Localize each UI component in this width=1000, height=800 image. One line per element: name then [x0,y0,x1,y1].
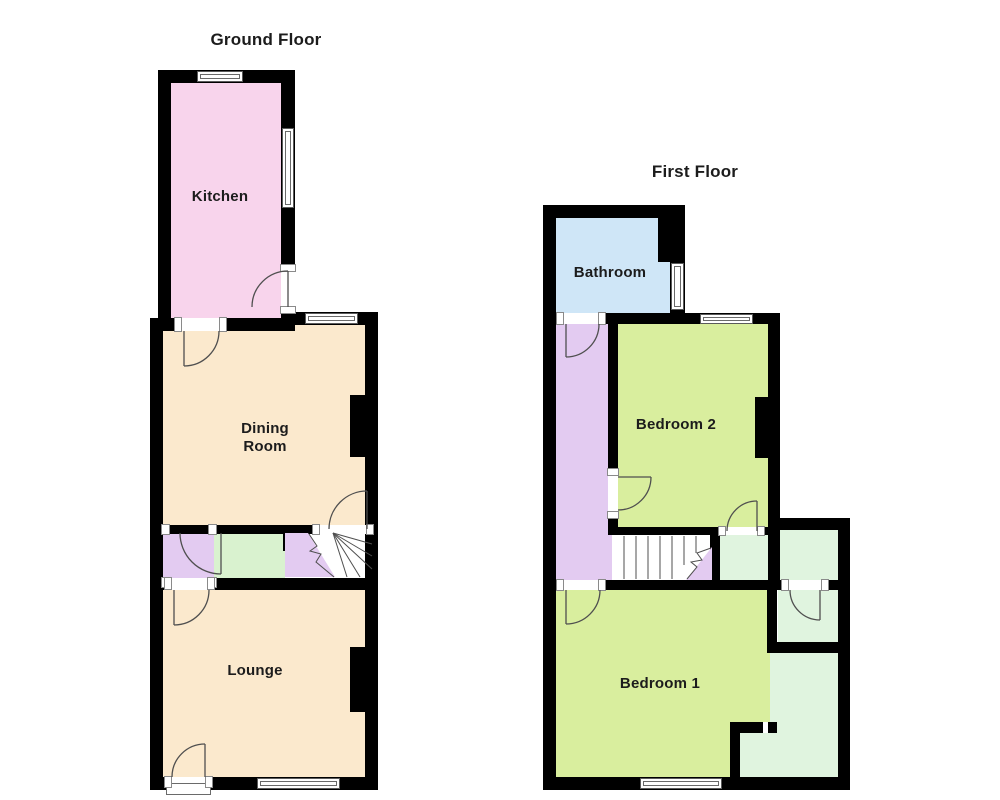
kitchen-side-window [282,128,294,208]
bedroom2-label: Bedroom 2 [616,416,736,434]
door-jamb [164,577,172,590]
door-jamb [219,317,227,332]
bedroom2-door-opening [608,475,618,513]
door-jamb [607,468,619,476]
door-jamb [718,526,726,536]
door-jamb [174,317,182,332]
wing-room-door-opening [788,580,822,590]
door-jamb [781,579,789,591]
bedroom2-rear-door-opening [725,527,759,535]
dining-hall-door-opening [320,525,367,534]
door-jamb [607,511,619,519]
wall [710,535,720,580]
lounge-door-opening [170,578,209,590]
door-jamb [556,312,564,325]
chimney-breast [350,647,366,712]
bedroom2-window [700,314,753,324]
kitchen-label: Kitchen [160,188,280,206]
door-jamb [205,776,213,788]
wall [365,312,378,790]
bedroom1-window [640,778,722,789]
wall [838,518,850,790]
door-jamb [598,579,606,591]
ff-stairs-area [614,532,712,582]
kitchen-back-door-opening [281,271,295,307]
dining-room-label: Dining Room [220,420,310,456]
dining-top-window [305,313,358,324]
door-jamb [757,526,765,536]
first-floor-title: First Floor [595,162,795,182]
door-jamb [821,579,829,591]
door-jamb [312,524,320,535]
door-jamb [280,264,296,272]
wing-mid-room-area [778,585,840,645]
bathroom-label: Bathroom [550,264,670,282]
bedroom1-door-opening [563,580,599,590]
wall [730,722,740,780]
door-jamb [164,776,172,788]
chimney-breast [350,395,366,457]
bedroom1-alcove-area [740,726,840,780]
wall [768,324,780,584]
wall [543,205,556,790]
wall [767,588,777,653]
door-jamb [207,577,215,590]
kitchen-dining-door-opening [181,318,220,331]
lounge-label: Lounge [195,662,315,680]
inner-hall-area [214,528,292,583]
bedroom1-label: Bedroom 1 [600,675,720,693]
wall [283,533,291,551]
wall [777,642,840,653]
floorplan-canvas: Ground Floor Kitchen Dining Room Lounge … [0,0,1000,800]
bathroom-door-opening [563,313,599,324]
gf-stairs-area [285,528,375,583]
lounge-room-area [160,583,368,783]
door-jamb [556,579,564,591]
wall [150,318,163,790]
kitchen-top-window [197,71,243,82]
wing-top-room-area [778,528,840,585]
wall [768,722,777,733]
stair-lobby-area [712,532,770,582]
ground-floor-title: Ground Floor [166,30,366,50]
landing-area [552,320,612,583]
door-jamb [366,524,374,535]
bathroom-window [671,263,684,310]
lounge-window [257,778,340,789]
door-jamb [161,524,170,535]
entrance-hall-area [158,528,218,583]
door-jamb [598,312,606,325]
door-jamb [280,306,296,314]
wall [658,205,685,262]
door-jamb [208,524,217,535]
alcove-wall-gap [763,722,768,733]
chimney-breast [755,397,768,458]
